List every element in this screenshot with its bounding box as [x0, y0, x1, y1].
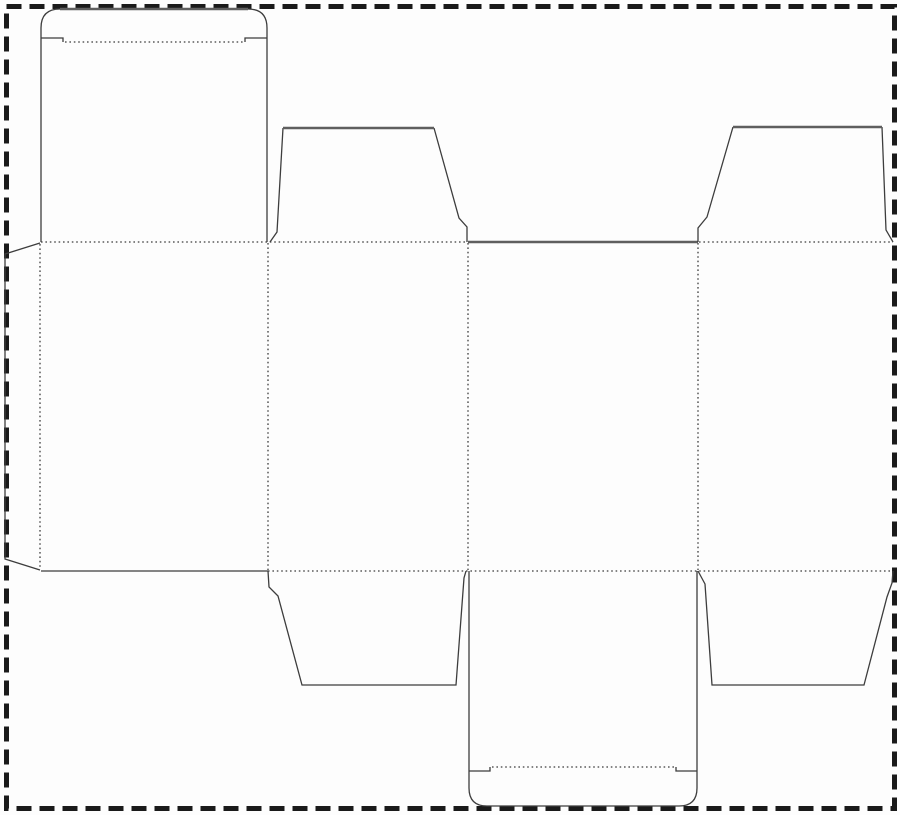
- bottom-dust-flap-left: [268, 571, 466, 685]
- top-lid-tuck-notch-right: [245, 38, 267, 42]
- bottom-lid-tuck-notch-right: [676, 767, 697, 771]
- dieline-svg: [0, 0, 900, 815]
- top-dust-flap-left-sides: [270, 128, 467, 242]
- dieline-page: [0, 0, 900, 815]
- top-lid-tuck-notch-left: [41, 38, 63, 42]
- bottom-dust-flap-right: [698, 571, 893, 685]
- bottom-lid-outline: [469, 571, 697, 806]
- bottom-lid-tuck-notch-left: [469, 767, 490, 771]
- top-dust-flap-right-sides: [698, 127, 893, 242]
- glue-flap-outline: [5, 243, 40, 570]
- top-lid-left-edge: [41, 9, 60, 242]
- top-lid-right-edge: [248, 9, 267, 242]
